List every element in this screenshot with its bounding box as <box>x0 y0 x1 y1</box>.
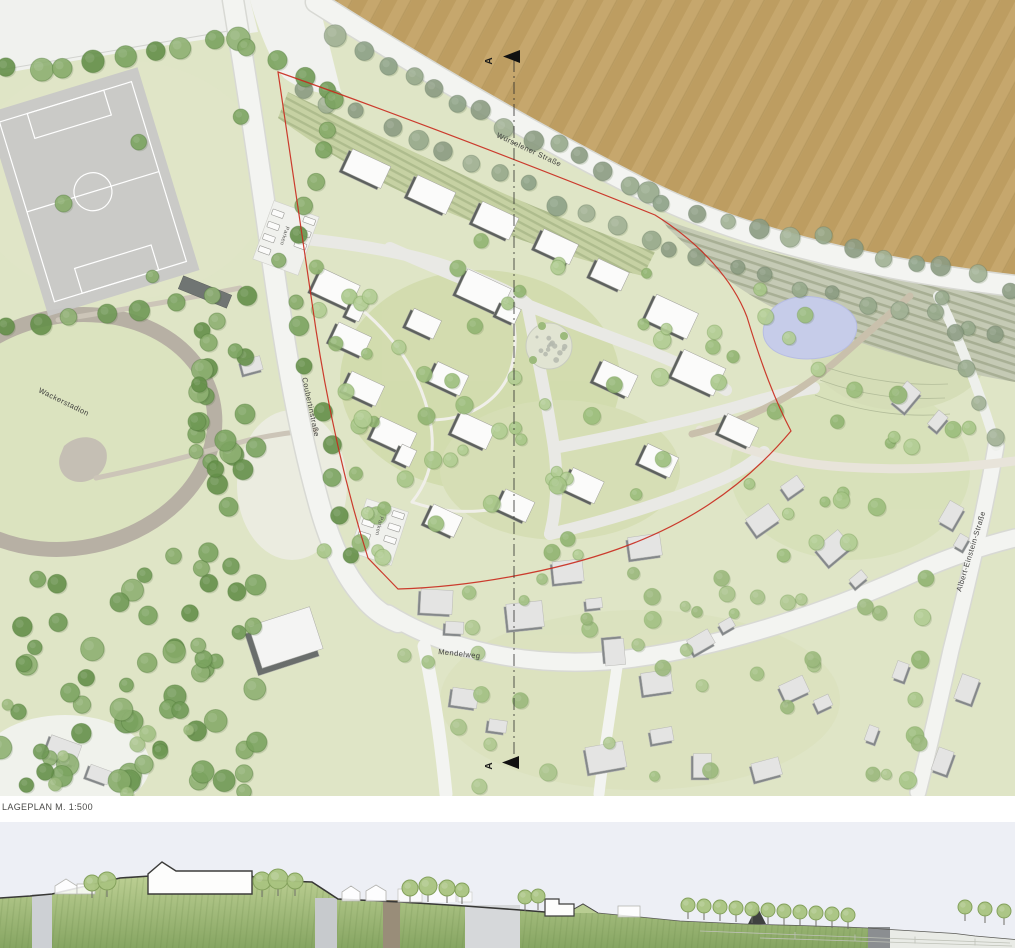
tree-highlight <box>990 431 997 438</box>
tree-highlight <box>271 53 279 61</box>
tree-highlight <box>550 199 558 207</box>
tree-highlight <box>821 498 825 502</box>
tree-highlight <box>211 315 218 322</box>
tree-highlight <box>364 291 370 297</box>
tree-highlight <box>580 207 587 214</box>
tree-highlight <box>510 373 516 379</box>
section-tree <box>793 905 807 919</box>
tree-highlight <box>167 688 176 697</box>
tree-highlight <box>871 501 878 508</box>
tree-highlight <box>756 285 761 290</box>
tree-highlight <box>240 41 247 48</box>
tree-highlight <box>713 377 720 384</box>
tree-highlight <box>162 702 170 710</box>
tree-highlight <box>140 656 148 664</box>
tree-highlight <box>902 774 909 781</box>
tree-highlight <box>783 230 791 238</box>
section-tree-highlight <box>520 892 526 898</box>
tree-highlight <box>230 30 240 40</box>
section-tree <box>681 898 695 912</box>
tree-highlight <box>752 669 758 675</box>
tree-highlight <box>497 121 505 129</box>
tree-highlight <box>292 319 300 327</box>
tree-highlight <box>168 550 175 557</box>
tree-highlight <box>797 595 802 600</box>
tree-highlight <box>322 124 329 131</box>
tree-highlight <box>39 766 46 773</box>
tree-highlight <box>596 164 604 172</box>
tree-highlight <box>55 768 64 777</box>
tree-highlight <box>910 694 916 700</box>
tree-highlight <box>914 653 921 660</box>
section-tree <box>809 906 823 920</box>
tree-highlight <box>657 662 664 669</box>
tree-highlight <box>474 103 482 111</box>
tree-highlight <box>250 735 259 744</box>
tree-highlight <box>553 262 559 268</box>
section-tree <box>531 889 545 903</box>
tree-highlight <box>733 262 739 268</box>
section-tree-highlight <box>731 903 737 909</box>
tree-highlight <box>203 336 210 343</box>
tree-highlight <box>236 462 244 470</box>
tree-highlight <box>380 503 385 508</box>
tree-highlight <box>729 352 734 357</box>
pebble <box>562 347 566 351</box>
pebble <box>552 343 557 348</box>
tree-highlight <box>137 758 145 766</box>
tree-highlight <box>207 290 214 297</box>
tree-highlight <box>807 654 814 661</box>
tree-highlight <box>752 222 760 230</box>
tree-highlight <box>132 739 138 745</box>
building-existing <box>443 621 464 636</box>
tree-highlight <box>682 603 686 607</box>
tree-highlight <box>291 297 297 303</box>
tree-highlight <box>874 608 880 614</box>
tree-highlight <box>436 144 444 152</box>
playground <box>526 322 572 369</box>
tree-highlight <box>122 789 127 794</box>
tree-highlight <box>195 362 204 371</box>
tree-highlight <box>231 585 239 593</box>
tree-highlight <box>248 577 257 586</box>
tree-highlight <box>80 672 87 679</box>
tree-highlight <box>238 407 246 415</box>
tree-highlight <box>515 287 520 292</box>
tree-highlight <box>210 463 217 470</box>
tree-highlight <box>149 44 157 52</box>
tree-highlight <box>216 773 225 782</box>
section-tree-highlight <box>422 880 429 887</box>
section-tree <box>958 900 972 914</box>
tree-highlight <box>551 479 558 486</box>
section-tree <box>729 901 743 915</box>
tree-highlight <box>459 446 463 450</box>
tree-highlight <box>133 136 140 143</box>
tree-highlight <box>318 144 325 151</box>
tree-highlight <box>698 681 703 686</box>
tree-highlight <box>503 299 508 304</box>
tree-highlight <box>759 269 765 275</box>
tree-highlight <box>84 641 94 651</box>
tree-highlight <box>111 773 121 783</box>
tree-highlight <box>1005 285 1012 292</box>
tree-highlight <box>195 764 204 773</box>
tree-highlight <box>34 317 43 326</box>
tree-highlight <box>4 701 9 706</box>
tree-highlight <box>731 610 735 614</box>
tree-highlight <box>655 198 662 205</box>
tree-highlight <box>274 255 280 261</box>
section-tree-highlight <box>747 904 753 910</box>
section-tree-highlight <box>404 882 410 888</box>
tree-highlight <box>382 60 389 67</box>
tree-highlight <box>194 379 200 385</box>
tree-highlight <box>691 208 698 215</box>
tree-highlight <box>447 375 453 381</box>
section-tree-highlight <box>699 901 705 907</box>
tree-highlight <box>909 729 916 736</box>
plan-area: A A Würselener Straße Coubertinstraße Me… <box>0 0 1015 815</box>
section-tree <box>455 883 469 897</box>
tree-highlight <box>208 713 218 723</box>
tree-highlight <box>63 686 71 694</box>
tree-highlight <box>239 744 246 751</box>
tree-highlight <box>582 615 587 620</box>
tree-highlight <box>629 569 634 574</box>
building-existing <box>550 559 585 587</box>
section-tree-highlight <box>980 904 986 910</box>
tree-highlight <box>59 752 64 757</box>
tree-highlight <box>690 251 697 258</box>
tree-highlight <box>222 500 230 508</box>
tree-highlight <box>520 597 524 601</box>
tree-highlight <box>517 435 522 440</box>
section-tree <box>697 899 711 913</box>
tree-highlight <box>170 296 177 303</box>
tree-highlight <box>202 546 210 554</box>
section-tree <box>402 880 418 896</box>
tree-highlight <box>314 305 320 311</box>
tree-highlight <box>193 640 199 646</box>
tree-highlight <box>546 547 553 554</box>
section-tree <box>761 903 775 917</box>
tree-highlight <box>641 185 650 194</box>
tree-highlight <box>328 93 336 101</box>
tree-highlight <box>319 546 325 552</box>
tree-highlight <box>247 620 254 627</box>
tree-highlight <box>340 386 347 393</box>
tree-highlight <box>185 726 189 730</box>
tree-highlight <box>218 433 227 442</box>
tree-highlight <box>716 573 723 580</box>
tree-highlight <box>651 773 655 777</box>
tree-highlight <box>166 643 175 652</box>
tree-highlight <box>783 597 789 603</box>
tree-highlight <box>428 82 435 89</box>
section-tree-highlight <box>999 906 1005 912</box>
bush <box>560 332 568 340</box>
tree-highlight <box>574 551 578 555</box>
tree-highlight <box>646 591 653 598</box>
tree-highlight <box>893 304 900 311</box>
tree-highlight <box>333 509 340 516</box>
tree-highlight <box>964 423 970 429</box>
section-panel <box>0 822 1015 948</box>
tree-highlight <box>934 259 942 267</box>
tree-highlight <box>476 235 482 241</box>
tree-highlight <box>326 471 334 479</box>
tree-highlight <box>52 616 60 624</box>
tree-highlight <box>779 551 785 557</box>
tree-highlight <box>240 289 248 297</box>
tree-highlight <box>723 216 729 222</box>
tree-highlight <box>34 61 44 71</box>
pebble <box>553 357 559 363</box>
bush <box>529 356 537 364</box>
tree-highlight <box>311 262 317 268</box>
tree-highlight <box>523 177 529 183</box>
tree-highlight <box>356 298 362 304</box>
tree-highlight <box>883 771 887 775</box>
tree-highlight <box>843 536 850 543</box>
section-marker-bottom-label: A <box>484 762 495 769</box>
tree-highlight <box>409 70 416 77</box>
tree-highlight <box>458 399 465 406</box>
tree-highlight <box>586 410 593 417</box>
tree-highlight <box>345 550 351 556</box>
section-tree-highlight <box>533 891 539 897</box>
tree-highlight <box>196 563 203 570</box>
tree-highlight <box>494 425 501 432</box>
section-tree <box>997 904 1011 918</box>
tree-highlight <box>326 438 334 446</box>
section-tree <box>439 880 455 896</box>
tree-highlight <box>85 53 94 62</box>
tree-highlight <box>770 405 777 412</box>
tree-highlight <box>427 454 434 461</box>
tree-highlight <box>113 701 123 711</box>
tree-highlight <box>476 689 483 696</box>
pebble <box>546 336 551 341</box>
pebble <box>543 352 548 357</box>
tree-highlight <box>563 534 569 540</box>
tree-highlight <box>721 588 728 595</box>
building-existing <box>601 636 626 666</box>
tree-highlight <box>387 121 395 129</box>
tree-highlight <box>191 415 198 422</box>
section-tree-highlight <box>763 905 769 911</box>
tree-highlight <box>989 328 996 335</box>
pebble <box>546 347 550 351</box>
section-tree-highlight <box>811 908 817 914</box>
tree-highlight <box>705 765 712 772</box>
tree-highlight <box>654 371 661 378</box>
tree-highlight <box>917 611 924 618</box>
tree-highlight <box>74 726 82 734</box>
section-tree-highlight <box>683 900 689 906</box>
building-existing <box>417 589 453 617</box>
tree-highlight <box>394 342 400 348</box>
section-tree-highlight <box>86 877 92 883</box>
tree-highlight <box>474 781 480 787</box>
tree-highlight <box>784 333 790 339</box>
section-tree <box>287 873 303 889</box>
tree-highlight <box>890 433 895 438</box>
tree-highlight <box>553 137 560 144</box>
tree-highlight <box>0 320 7 327</box>
tree-highlight <box>708 342 714 348</box>
plan-title: LAGEPLAN M. 1:500 <box>2 802 93 812</box>
tree-highlight <box>930 306 937 313</box>
section-tree-highlight <box>960 902 966 908</box>
section-tree <box>777 904 791 918</box>
tree-highlight <box>174 704 181 711</box>
tree-highlight <box>486 740 491 745</box>
section-tree-highlight <box>715 902 721 908</box>
tree-highlight <box>121 680 127 686</box>
tree-highlight <box>541 400 546 405</box>
tree-highlight <box>327 28 336 37</box>
tree-highlight <box>196 325 203 332</box>
tree-highlight <box>827 287 833 293</box>
tree-highlight <box>58 197 65 204</box>
tree-highlight <box>486 498 493 505</box>
tree-highlight <box>50 577 58 585</box>
tree-highlight <box>511 423 516 428</box>
tree-highlight <box>344 291 350 297</box>
tree-highlight <box>538 575 543 580</box>
tree-highlight <box>974 398 980 404</box>
tree-highlight <box>836 494 843 501</box>
tree-highlight <box>100 307 108 315</box>
tree-highlight <box>191 447 197 453</box>
tree-highlight <box>36 746 42 752</box>
tree-highlight <box>298 70 306 78</box>
tree-highlight <box>419 369 426 376</box>
tree-highlight <box>643 270 647 274</box>
tree-highlight <box>452 263 459 270</box>
section-tree <box>98 872 116 890</box>
tree-highlight <box>662 325 667 330</box>
tree-highlight <box>782 702 788 708</box>
section-tree <box>713 900 727 914</box>
section-tree <box>978 902 992 916</box>
tree-highlight <box>400 650 406 656</box>
site-plan-drawing: A A Würselener Straße Coubertinstraße Me… <box>0 0 1015 948</box>
tree-highlight <box>906 441 913 448</box>
tree-highlight <box>752 592 758 598</box>
tree-highlight <box>972 267 979 274</box>
section-tree <box>84 875 100 891</box>
tree-highlight <box>639 320 644 325</box>
tree-highlight <box>451 98 458 105</box>
tree-highlight <box>235 111 241 117</box>
tree-highlight <box>709 327 715 333</box>
tree-highlight <box>811 537 817 543</box>
tree-highlight <box>937 293 943 299</box>
tree-highlight <box>400 473 407 480</box>
tree-highlight <box>317 405 325 413</box>
pebble <box>557 350 562 355</box>
section-tree-highlight <box>843 910 849 916</box>
title-strip-background <box>0 796 1015 822</box>
tree-highlight <box>118 49 127 58</box>
tree-highlight <box>225 560 232 567</box>
section-tree <box>825 907 839 921</box>
tree-highlight <box>113 595 121 603</box>
tree-highlight <box>656 334 663 341</box>
tree-highlight <box>693 608 698 613</box>
section-tree <box>518 890 532 904</box>
tree-highlight <box>794 284 800 290</box>
tree-highlight <box>914 737 921 744</box>
tree-highlight <box>963 323 969 329</box>
tree-highlight <box>878 253 885 260</box>
tree-highlight <box>760 311 767 318</box>
tree-highlight <box>350 105 356 111</box>
tree-highlight <box>860 601 867 608</box>
tree-highlight <box>125 582 134 591</box>
tree-highlight <box>920 573 927 580</box>
tree-highlight <box>357 413 364 420</box>
tree-highlight <box>746 480 751 485</box>
tree-highlight <box>658 453 665 460</box>
tree-highlight <box>542 766 549 773</box>
tree-highlight <box>813 364 819 370</box>
tree-highlight <box>624 179 632 187</box>
tree-highlight <box>868 769 874 775</box>
section-tree <box>268 869 288 889</box>
tree-highlight <box>32 573 39 580</box>
tree-highlight <box>15 620 23 628</box>
tree-highlight <box>351 469 357 475</box>
tree-highlight <box>412 133 420 141</box>
tree-highlight <box>445 455 451 461</box>
tree-highlight <box>363 509 368 514</box>
tree-highlight <box>947 424 954 431</box>
tree-highlight <box>862 300 869 307</box>
tree-highlight <box>849 384 856 391</box>
tree-highlight <box>142 728 149 735</box>
tree-highlight <box>424 657 429 662</box>
tree-highlight <box>847 242 855 250</box>
tree-highlight <box>611 219 619 227</box>
building-existing <box>485 718 507 735</box>
tree-highlight <box>293 229 300 236</box>
pebble <box>535 336 538 339</box>
tree-highlight <box>453 721 460 728</box>
tree-highlight <box>818 229 825 236</box>
tree-highlight <box>515 695 522 702</box>
tree-highlight <box>467 622 473 628</box>
tree-highlight <box>605 739 610 744</box>
tree-highlight <box>297 199 304 206</box>
tree-highlight <box>647 614 654 621</box>
tree-highlight <box>50 779 56 785</box>
tree-highlight <box>230 346 236 352</box>
tree-highlight <box>950 327 957 334</box>
tree-highlight <box>239 786 245 792</box>
tree-highlight <box>310 176 317 183</box>
tree-highlight <box>784 510 789 515</box>
tree-highlight <box>139 570 145 576</box>
tree-highlight <box>298 360 305 367</box>
tree-highlight <box>465 158 472 165</box>
section-tree-highlight <box>457 885 463 891</box>
building-existing <box>583 598 603 612</box>
